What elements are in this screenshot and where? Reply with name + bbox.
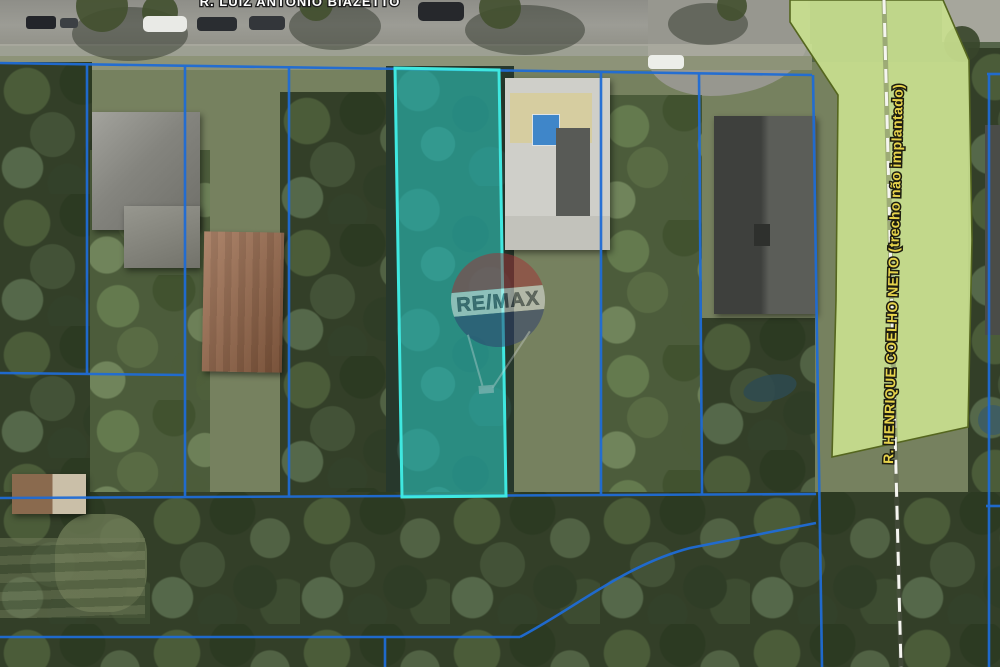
car-white xyxy=(143,16,187,32)
balloon-basket xyxy=(478,385,494,394)
satellite-map: R. LUIZ ANTONIO BIAZETTO R. HENRIQUE COE… xyxy=(0,0,1000,667)
map-overlay: R. LUIZ ANTONIO BIAZETTO R. HENRIQUE COE… xyxy=(0,0,1000,667)
curved-lot-line xyxy=(520,523,816,637)
car-dark xyxy=(197,17,237,31)
rear-lot-line xyxy=(0,373,186,375)
street-name-label: R. LUIZ ANTONIO BIAZETTO xyxy=(200,0,401,9)
car-dark xyxy=(249,16,285,30)
lot-line-west-of-road xyxy=(813,75,822,667)
lot-line xyxy=(699,73,702,495)
car-dark xyxy=(418,2,464,21)
car-dark xyxy=(26,16,56,29)
car-dark-small xyxy=(60,18,78,28)
pond xyxy=(741,370,799,407)
car-white xyxy=(648,55,684,69)
